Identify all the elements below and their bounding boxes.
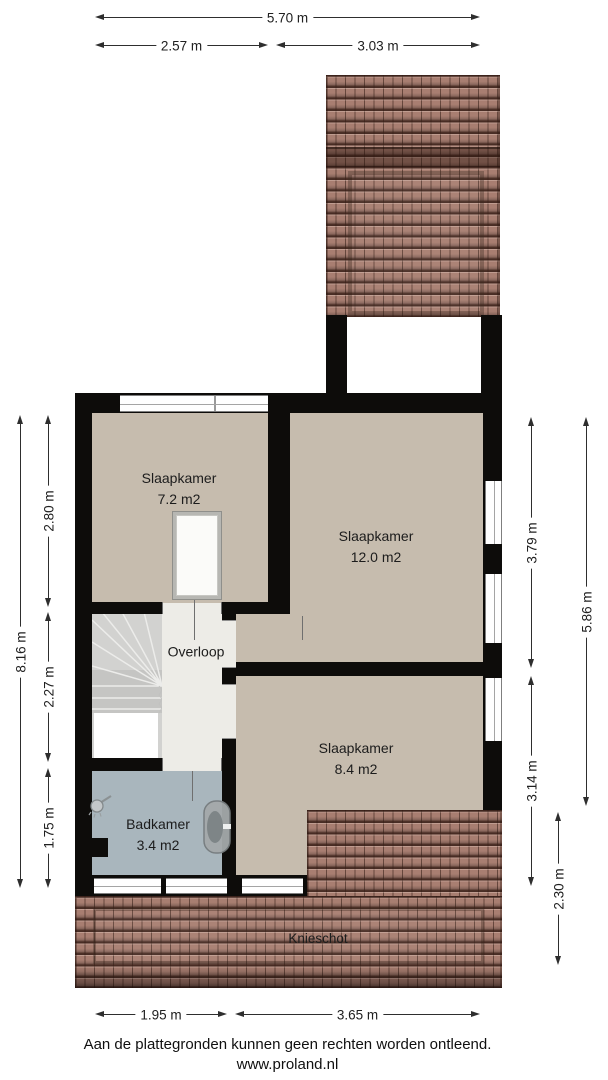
- dimension-left-top: 2.80 m: [44, 415, 53, 607]
- roof-edge-shadow: [75, 966, 502, 988]
- dimension-bottom-left: 1.95 m: [95, 1010, 227, 1019]
- dimension-top-total: 5.70 m: [95, 13, 480, 22]
- room-name: Slaapkamer: [319, 740, 394, 756]
- room-name: Overloop: [168, 644, 225, 660]
- room-area: 7.2 m2: [158, 491, 201, 507]
- roof-window-pane: [176, 515, 218, 596]
- dimension-left-total: 8.16 m: [16, 415, 25, 888]
- door-leaf-line-bathroom: [192, 771, 193, 801]
- room-name: Slaapkamer: [142, 470, 217, 486]
- door-jamb-line: [221, 602, 222, 614]
- stairs-icon: [92, 612, 162, 758]
- dimension-bottom-right: 3.65 m: [235, 1010, 480, 1019]
- footer-disclaimer: Aan de plattegronden kunnen geen rechten…: [0, 1036, 575, 1053]
- shower-icon: [86, 791, 116, 821]
- dimension-left-mid: 2.27 m: [44, 612, 53, 762]
- wall-bathroom-top: [92, 758, 162, 771]
- room-area: 12.0 m2: [351, 549, 402, 565]
- room-area: 8.4 m2: [335, 761, 378, 777]
- dimension-top-right: 3.03 m: [276, 41, 480, 50]
- wall-landing-top: [222, 602, 290, 614]
- dormer-roof-panel: [348, 171, 484, 315]
- room-label-bedroom-large: Slaapkamer 12.0 m2: [339, 526, 414, 568]
- door-leaf-line-bedroom-small: [194, 600, 195, 640]
- dimension-right-roof: 2.30 m: [554, 812, 563, 965]
- window-bottom-3: [242, 878, 303, 894]
- room-name: Badkamer: [126, 816, 190, 832]
- footer-website: www.proland.nl: [0, 1056, 575, 1073]
- room-name: Knieschot: [288, 931, 347, 946]
- room-label-bedroom-small: Slaapkamer 7.2 m2: [142, 468, 217, 510]
- dimension-right-total: 5.86 m: [582, 417, 591, 806]
- wall-bedroom-mid-top: [236, 662, 483, 676]
- toilet-icon: [202, 799, 232, 855]
- dormer-roof: [326, 75, 500, 317]
- roof-window-icon: [172, 511, 222, 600]
- room-label-bedroom-mid: Slaapkamer 8.4 m2: [319, 738, 394, 780]
- room-label-kneewall: Knieschot: [288, 929, 347, 949]
- room-name: Slaapkamer: [339, 528, 414, 544]
- window-right-1: [485, 481, 502, 544]
- door-opening-bedroom-mid: [222, 684, 236, 739]
- dimension-left-bottom: 1.75 m: [44, 768, 53, 888]
- window-bottom-1: [94, 878, 161, 894]
- roof-ridge-line: [326, 147, 500, 167]
- door-jamb-line: [162, 758, 163, 771]
- door-jamb-line: [221, 758, 222, 771]
- room-label-landing: Overloop: [168, 642, 225, 663]
- door-jamb-line: [162, 602, 163, 614]
- window-right-2: [485, 574, 502, 643]
- wall-bathroom-stub: [92, 838, 108, 857]
- wall-landing-right-b: [222, 666, 236, 684]
- window-top: [120, 395, 268, 412]
- floorplan: Slaapkamer 7.2 m2 Slaapkamer 12.0 m2 Ove…: [0, 0, 608, 1080]
- dimension-right-bottom: 3.14 m: [527, 676, 536, 886]
- wall-stairs-top: [92, 602, 162, 614]
- dormer-wall-left: [326, 315, 347, 395]
- wall-bedrooms-divider: [268, 413, 290, 614]
- room-area: 3.4 m2: [137, 837, 180, 853]
- door-leaf-line-bedroom-large: [302, 616, 303, 640]
- window-bottom-2: [166, 878, 227, 894]
- dimension-right-top: 3.79 m: [527, 417, 536, 668]
- dimension-top-left: 2.57 m: [95, 41, 268, 50]
- window-right-3: [485, 678, 502, 741]
- roof-patch-bedroom-mid: [307, 810, 502, 898]
- room-label-bathroom: Badkamer 3.4 m2: [126, 814, 190, 856]
